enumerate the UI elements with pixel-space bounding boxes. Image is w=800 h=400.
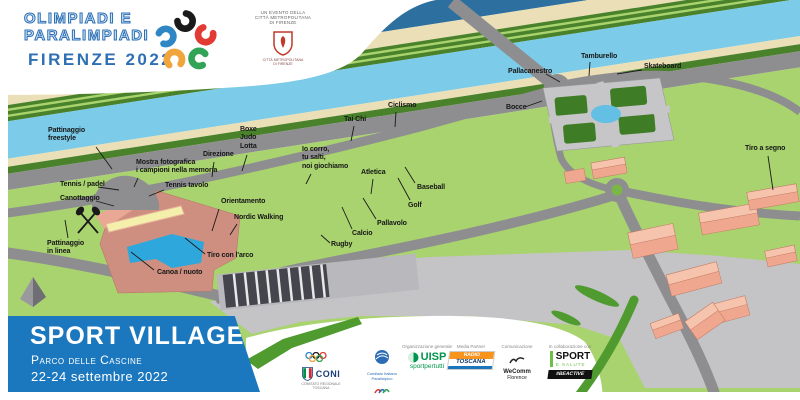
cip-globe-icon [374,349,390,365]
poster: Pattinaggio freestyle Mostra fotografica… [0,0,800,400]
sport-label-canottaggio: Canottaggio [60,195,100,203]
sport-salute-sub: E SALUTE [556,362,590,367]
sport-label-baseball: Baseball [417,184,445,192]
event-title-line1: OLIMPIADI E [24,10,149,27]
cip-sub: Comitato Italiano Paralimpico [356,371,408,381]
garden-pond [591,105,621,123]
wecomm-icon [509,355,525,364]
uisp-name: UISP [421,351,447,363]
sport-label-rugby: Rugby [331,241,352,249]
sport-label-calcio: Calcio [352,230,372,238]
sport-label-golf: Golf [408,202,422,210]
beactive-badge: #BEACTIVE [547,370,592,379]
sport-label-mostra-fotografica: Mostra fotografica i campioni nella memo… [136,159,217,176]
sponsor-sport-e-salute: In collaborazione con SPORT E SALUTE #BE… [543,344,597,379]
village-location: Parco delle Cascine [31,353,142,367]
sport-label-tennis-tavolo: Tennis tavolo [165,182,208,190]
radio-toscana-bottom: TOSCANA [448,359,493,366]
sport-label-pattinaggio-in-linea: Pattinaggio in linea [47,240,84,257]
sport-label-ciclismo: Ciclismo [388,102,416,110]
sport-label-pattinaggio-freestyle: Pattinaggio freestyle [48,127,85,144]
radio-toscana-logo: RADIO TOSCANA [447,351,496,370]
crest-caption: CITTÀ METROPOLITANA DI FIRENZE [252,58,314,66]
village-title: SPORT VILLAGE [30,322,244,351]
sport-label-tamburello: Tamburello [581,53,617,61]
sport-label-bocce: Bocce [506,104,527,112]
title-panel: SPORT VILLAGE Parco delle Cascine 22-24 … [8,316,260,392]
italy-shield-icon [302,367,313,381]
coni-sub: COMITATO REGIONALE TOSCANA [298,382,344,390]
garden-square [543,78,674,151]
sport-label-canoa-nuoto: Canoa / nuoto [157,269,202,277]
metro-city-crest-icon [272,30,294,56]
sport-label-tai-chi: Tai Chi [344,116,366,124]
wecomm-caption: Comunicazione [494,344,540,349]
uisp-icon [408,352,419,363]
sport-label-io-corro: Io corro, tu salti, noi giochiamo [302,146,348,171]
sport-label-tennis-padel: Tennis / padel [60,181,105,189]
village-dates: 22-24 settembre 2022 [31,369,168,384]
radio-toscana-top: RADIO [449,352,494,359]
event-note: UN EVENTO DELLA CITTÀ METROPOLITANA DI F… [244,10,322,25]
sponsor-radio-toscana: Media Partner RADIO TOSCANA [445,344,497,370]
sponsor-coni: CONI COMITATO REGIONALE TOSCANA [293,349,349,390]
florence-lily-logo [148,4,224,80]
sport-label-orientamento: Orientamento [221,198,265,206]
sponsor-wecomm: Comunicazione WeComm Florence [494,344,540,381]
sport-label-nordic-walking: Nordic Walking [234,214,283,222]
event-title-line2: PARALIMPIADI [24,27,149,44]
sport-label-tiro-a-segno: Tiro a segno [745,145,785,153]
sport-label-skateboard: Skateboard [644,63,681,71]
event-title: OLIMPIADI E PARALIMPIADI [24,10,149,45]
sport-label-direzione: Direzione [203,151,234,159]
sport-label-pallavolo: Pallavolo [377,220,407,228]
olympic-rings-icon [304,352,338,362]
sport-label-atletica: Atletica [361,169,386,177]
agitos-icon [373,387,391,394]
sport-label-boxe-judo-lotta: Boxe Judo Lotta [240,126,257,151]
sport-salute-bar [550,351,553,367]
sport-salute-name: SPORT [556,352,590,362]
sport-label-pallacanestro: Pallacanestro [508,68,552,76]
ses-caption: In collaborazione con [543,344,597,349]
sport-label-tiro-con-larco: Tiro con l'arco [207,252,253,260]
coni-name: CONI [316,369,341,379]
wecomm-sub: Florence [494,375,540,381]
radio-caption: Media Partner [445,344,497,349]
